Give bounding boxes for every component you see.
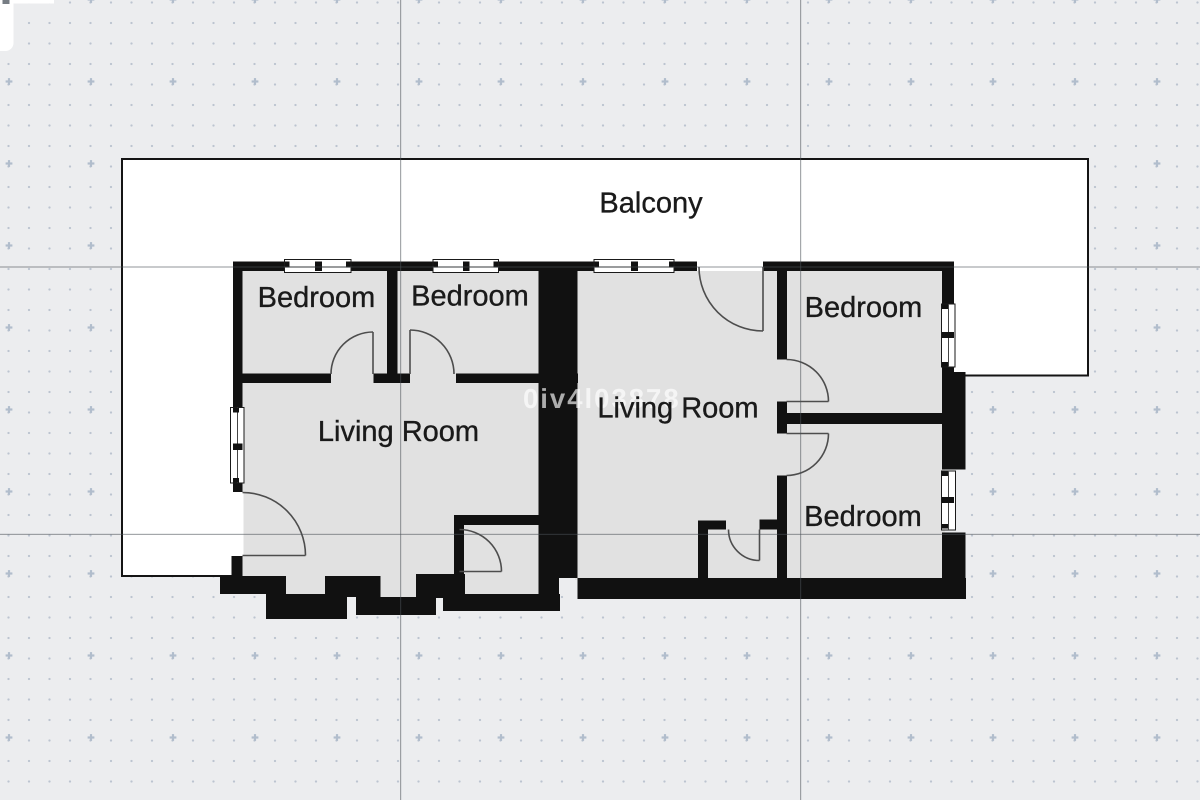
svg-text:Bedroom: Bedroom [804,501,922,533]
svg-text:Living Room: Living Room [318,416,479,448]
svg-text:Balcony: Balcony [599,188,703,220]
svg-text:Living Room: Living Room [597,393,758,425]
svg-text:Bedroom: Bedroom [258,282,376,314]
svg-text:Bedroom: Bedroom [805,292,923,324]
svg-text:Bedroom: Bedroom [411,281,529,313]
